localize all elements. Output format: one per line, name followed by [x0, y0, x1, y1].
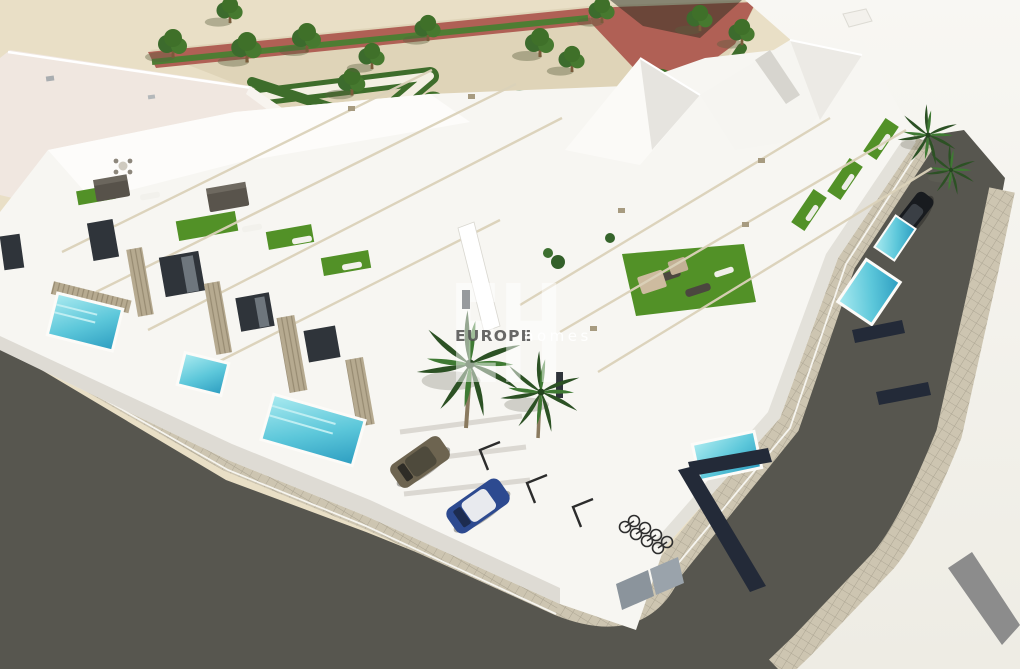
watermark-brand-primary: EUROPE	[455, 327, 532, 345]
render-scene: EH EUROPE homes	[0, 0, 1020, 669]
watermark-brand-secondary: homes	[524, 327, 592, 345]
architectural-render-image: EH EUROPE homes	[0, 0, 1020, 669]
